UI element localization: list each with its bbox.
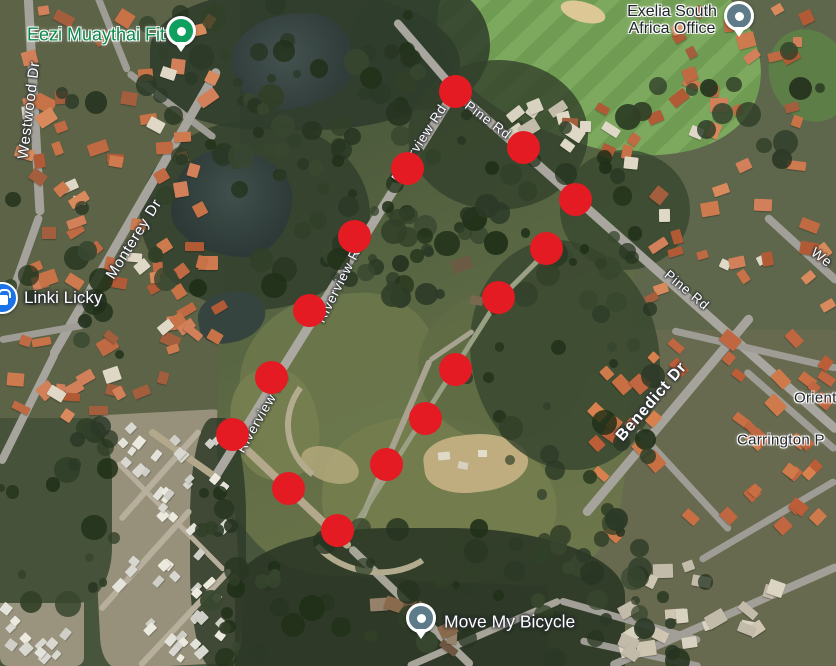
boundary-dot bbox=[391, 152, 424, 185]
boundary-dot bbox=[255, 361, 288, 394]
boundary-dot bbox=[321, 514, 354, 547]
boundary-dot bbox=[439, 353, 472, 386]
boundary-dot bbox=[272, 472, 305, 505]
boundary-dot bbox=[409, 402, 442, 435]
boundary-dot bbox=[338, 220, 371, 253]
boundary-dot bbox=[293, 294, 326, 327]
boundary-dot bbox=[530, 232, 563, 265]
boundary-dot bbox=[559, 183, 592, 216]
boundary-dot bbox=[216, 418, 249, 451]
boundary-dot bbox=[507, 131, 540, 164]
boundary-dot bbox=[370, 448, 403, 481]
boundary-dot bbox=[482, 281, 515, 314]
annotation-dots-layer bbox=[0, 0, 836, 666]
satellite-map[interactable]: Westwood DrMonterey DrRiverview RdRiverv… bbox=[0, 0, 836, 666]
boundary-dot bbox=[439, 75, 472, 108]
